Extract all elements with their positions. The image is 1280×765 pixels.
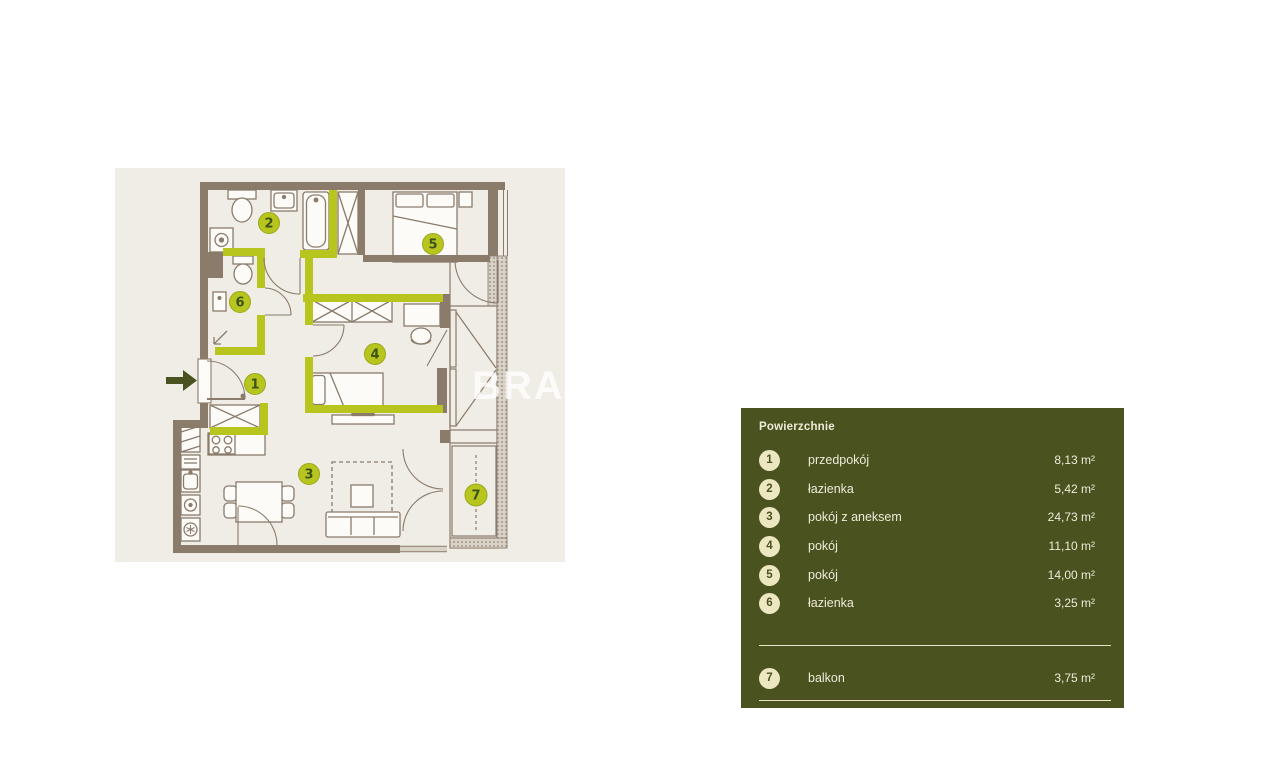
room-circle-4: 4 [365, 344, 386, 365]
legend-row-label: pokój [808, 568, 838, 582]
chair [224, 503, 237, 518]
sofa [326, 512, 400, 537]
svg-text:5: 5 [428, 238, 437, 253]
legend-row: 4 pokój 11,10 m² [759, 535, 1095, 557]
room-circle-3: 3 [299, 464, 320, 485]
svg-text:4: 4 [370, 348, 379, 363]
room-circle-5: 5 [423, 234, 444, 255]
legend-row-area: 24,73 m² [1048, 510, 1095, 524]
toilet-bowl [234, 264, 252, 284]
pillow [427, 194, 454, 207]
legend-row-area: 14,00 m² [1048, 568, 1095, 582]
fridge [181, 424, 200, 452]
room-circle-6: 6 [230, 292, 251, 313]
toilet-tank [233, 256, 253, 264]
legend-row-area: 11,10 m² [1049, 539, 1095, 553]
legend-divider [759, 700, 1111, 701]
legend-row-number-badge: 3 [759, 507, 780, 528]
legend-row: 5 pokój 14,00 m² [759, 564, 1095, 586]
room-circle-2: 2 [259, 213, 280, 234]
svg-text:2: 2 [264, 217, 273, 232]
coffee-table [351, 485, 373, 507]
pillow [396, 194, 423, 207]
legend-row: 1 przedpokój 8,13 m² [759, 449, 1095, 471]
legend-row-label: pokój [808, 539, 838, 553]
legend-row-label: łazienka [808, 482, 854, 496]
svg-text:7: 7 [471, 489, 480, 504]
pillow [312, 376, 325, 405]
legend-panel: Powierzchnie 1 przedpokój 8,13 m² 2 łazi… [741, 408, 1124, 708]
legend-row-area: 3,25 m² [1054, 596, 1095, 610]
chair [224, 486, 237, 501]
entrance-door-frame [198, 359, 211, 403]
legend-row-area: 5,42 m² [1054, 482, 1095, 496]
legend-row-label: przedpokój [808, 453, 869, 467]
room-circle-1: 1 [245, 374, 266, 395]
legend-row: 3 pokój z aneksem 24,73 m² [759, 506, 1095, 528]
chair [281, 486, 294, 501]
legend-title: Powierzchnie [759, 421, 835, 433]
legend-row-number-badge: 5 [759, 565, 780, 586]
svg-text:1: 1 [250, 378, 259, 393]
legend-row-label: balkon [808, 671, 845, 685]
toilet-bowl [232, 198, 252, 222]
chair [281, 503, 294, 518]
room-circle-7: 7 [465, 484, 487, 506]
small-sink [213, 292, 226, 311]
legend-row: 2 łazienka 5,42 m² [759, 478, 1095, 500]
nightstand [459, 192, 472, 207]
desk-chair [411, 328, 431, 344]
legend-row-label: pokój z aneksem [808, 510, 902, 524]
legend-row-number-badge: 7 [759, 668, 780, 689]
desk [404, 304, 440, 326]
legend-row-label: łazienka [808, 596, 854, 610]
legend-row-number-badge: 1 [759, 450, 780, 471]
legend-row-area: 3,75 m² [1054, 671, 1095, 685]
legend-row-number-badge: 4 [759, 536, 780, 557]
legend-row: 6 łazienka 3,25 m² [759, 592, 1095, 614]
legend-row-area: 8,13 m² [1054, 453, 1095, 467]
legend-row: 7 balkon 3,75 m² [759, 667, 1095, 689]
legend-divider [759, 645, 1111, 646]
legend-row-number-badge: 6 [759, 593, 780, 614]
page: 1 2 3 4 5 6 7 BRAC Powierzchnie 1 przedp… [0, 0, 1280, 765]
tv-stand [332, 415, 394, 424]
svg-text:3: 3 [304, 468, 313, 483]
watermark-text: BRAC [472, 364, 596, 408]
legend-row-number-badge: 2 [759, 479, 780, 500]
dining-table [236, 482, 282, 522]
svg-text:6: 6 [235, 296, 244, 311]
